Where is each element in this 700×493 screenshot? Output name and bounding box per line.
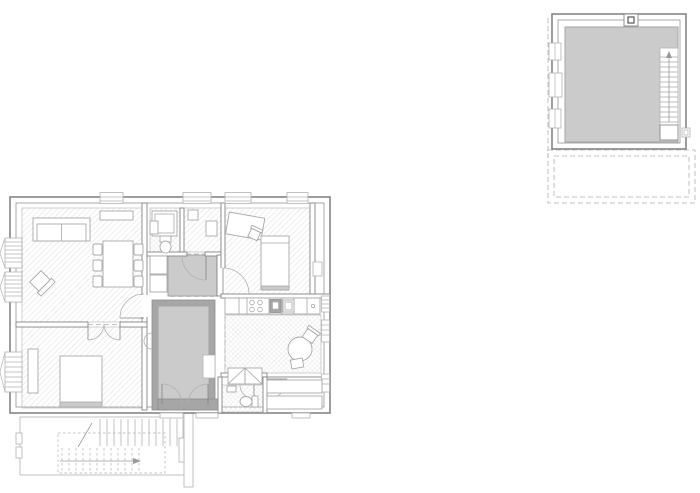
garden-stair-terrace [16,417,185,475]
wc-washbasin [227,386,236,392]
floor-plan-canvas [0,0,700,493]
oven [270,300,281,313]
terrace-wall-recess [16,433,22,444]
ground-floor-plan [0,193,330,488]
kitchen-sink [283,300,294,312]
washbasin [150,221,158,234]
floor-plan-drawing [0,0,700,493]
bay-window [0,352,22,392]
bay-window [0,272,22,302]
sideboard [100,211,133,220]
vestibule-cupboards [150,256,167,292]
single-bed-footboard [261,286,289,290]
chimney [624,14,638,26]
terrace-outline [20,417,185,475]
terrace-wall-recess [16,447,22,458]
basement-staircase [660,48,678,140]
stair-hall-floor [158,306,209,404]
closet-cross-braced [228,368,262,384]
entrance-walkway [184,413,193,487]
wc-toilet [240,396,258,407]
dining-table [103,241,133,287]
single-bed [261,236,289,290]
terrace-outline-dashed [548,150,695,203]
basement-plan [548,14,695,203]
bed-footboard [60,402,102,407]
sofa [33,218,90,241]
entrance-step [160,413,183,418]
basement-right-window [682,128,690,137]
right-strip-recess [313,262,322,276]
washbasin [206,221,217,236]
wardrobe-cabinet [28,349,38,393]
double-bed [60,356,102,406]
walkway-side-recess [179,438,184,462]
rear-step [292,413,310,418]
entrance-step [196,413,218,418]
basement-light-wells [549,43,562,128]
stair-hall-niche [203,355,215,378]
kitchen-chair [290,358,303,369]
cabinet [188,210,198,220]
bay-window [0,238,22,268]
toilet [160,236,171,253]
